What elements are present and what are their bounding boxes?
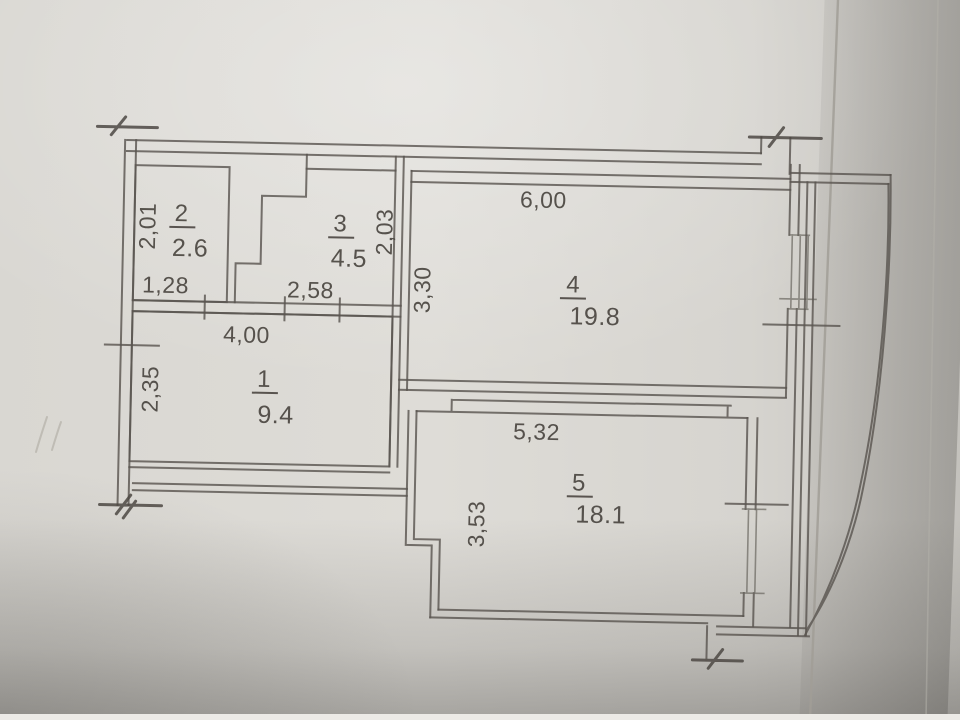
dimension-tick-window5	[726, 504, 788, 505]
balcony-bottom-wall	[717, 626, 809, 636]
room-4-underline	[560, 298, 586, 299]
room-3-top-wall	[307, 169, 396, 171]
axis-marker-top-right	[749, 127, 821, 148]
balcony-top-wall	[790, 173, 890, 184]
room-3-number: 3	[333, 210, 347, 237]
page-crease-line	[810, 0, 838, 720]
room-1-width-dim: 4,00	[223, 321, 270, 348]
outer-wall-top	[127, 140, 761, 164]
wall-stub-bottom-right	[706, 626, 707, 660]
room-2-height-dim: 2,01	[134, 202, 161, 249]
room-5-bottom-wall	[430, 609, 743, 624]
room-4-bottom-wall	[399, 380, 786, 398]
room-2-width-dim: 1,28	[142, 271, 189, 298]
room-5-right-wall	[743, 418, 757, 626]
room-2-underline	[169, 227, 195, 228]
room-5-width-dim: 5,32	[513, 418, 560, 445]
wall-break-notch-top-right	[761, 137, 791, 174]
axis-marker-bottom-right	[692, 649, 742, 669]
plan-walls	[86, 113, 892, 672]
outer-wall-left	[118, 140, 137, 505]
page-edge-line	[926, 0, 938, 720]
room-5-top-wall	[417, 399, 748, 418]
axis-marker-top-left	[97, 116, 157, 135]
room-5-height-dim: 3,53	[463, 500, 490, 547]
room-5-left-wall	[404, 411, 442, 618]
floor-plan-photo: 1 9.4 4,00 2,35 2 2.6 1,28 2,01 3 4.5 2,…	[0, 0, 960, 720]
room-1-underline	[252, 393, 278, 394]
room-5-number: 5	[572, 469, 586, 496]
room-2-number: 2	[174, 200, 188, 227]
window-room4	[780, 235, 818, 310]
pencil-scribble	[36, 417, 61, 452]
room-4-height-dim: 3,30	[409, 266, 436, 313]
room-4-width-dim: 6,00	[520, 186, 567, 213]
room-4-number: 4	[566, 271, 580, 298]
room-5-underline	[567, 496, 593, 497]
room-1-area: 9.4	[257, 401, 294, 430]
dimension-tick-window4	[763, 324, 839, 326]
floor-plan-drawing: 1 9.4 4,00 2,35 2 2.6 1,28 2,01 3 4.5 2,…	[0, 0, 960, 720]
room-3-area: 4.5	[330, 244, 367, 273]
room-2-area: 2.6	[172, 234, 209, 263]
axis-marker-bottom-left	[99, 494, 161, 518]
outer-wall-bottom-left-section	[133, 483, 407, 496]
room-1-height-dim: 2,35	[136, 365, 163, 412]
room-3-width-dim: 2,58	[287, 276, 334, 303]
balcony-outer-curve	[805, 173, 891, 637]
room-3-height-dim: 2,03	[371, 208, 398, 255]
room-1-number: 1	[257, 366, 271, 393]
window-room5	[741, 509, 766, 593]
room-5-area: 18.1	[575, 500, 626, 529]
wall-rooms13-right	[389, 157, 403, 467]
photo-bottom-edge	[0, 714, 960, 720]
room-4-top-wall	[411, 171, 790, 190]
room-3-underline	[328, 237, 354, 238]
room-4-area: 19.8	[569, 302, 620, 331]
